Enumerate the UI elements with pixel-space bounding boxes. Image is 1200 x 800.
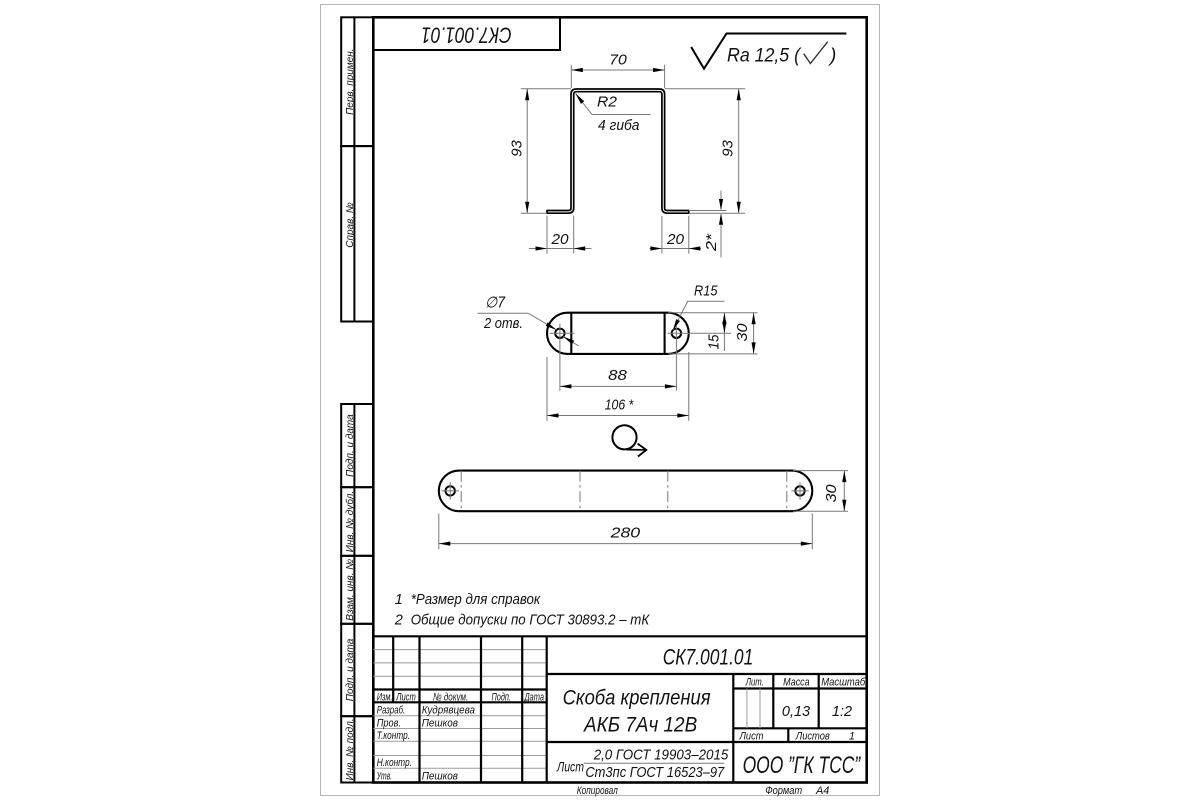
svg-text:Пешков: Пешков — [422, 771, 459, 783]
svg-text:Пешков: Пешков — [422, 717, 459, 729]
svg-text:2: 2 — [394, 613, 403, 629]
svg-text:Подп.: Подп. — [491, 692, 511, 704]
svg-text:1:2: 1:2 — [832, 704, 852, 720]
svg-text:Дата: Дата — [523, 692, 544, 704]
svg-text:Разраб.: Разраб. — [377, 705, 406, 717]
svg-text:93: 93 — [720, 140, 737, 157]
svg-text:1: 1 — [395, 592, 403, 608]
svg-text:2 отв.: 2 отв. — [483, 315, 523, 332]
svg-text:Формат: Формат — [765, 785, 802, 797]
svg-text:Кудрявцева: Кудрявцева — [422, 705, 475, 717]
svg-text:93: 93 — [509, 140, 526, 157]
svg-text:Ra 12,5 (: Ra 12,5 ( — [727, 46, 802, 67]
svg-text:Лит.: Лит. — [745, 677, 764, 689]
svg-text:280: 280 — [609, 525, 640, 542]
svg-text:106 *: 106 * — [605, 397, 634, 414]
svg-text:70: 70 — [609, 51, 627, 68]
svg-text:1: 1 — [849, 731, 855, 743]
svg-text:Утв.: Утв. — [376, 771, 392, 783]
svg-text:Н.контр.: Н.контр. — [377, 757, 412, 769]
svg-text:Лист: Лист — [396, 692, 416, 704]
svg-text:15: 15 — [706, 334, 723, 350]
svg-text:Лист: Лист — [556, 760, 584, 775]
svg-text:Изм.: Изм. — [377, 692, 393, 704]
svg-text:R2: R2 — [597, 94, 618, 111]
svg-text:СК7.001.01: СК7.001.01 — [421, 22, 512, 47]
svg-text:30: 30 — [823, 484, 840, 503]
svg-text:Масштаб: Масштаб — [821, 677, 866, 689]
svg-text:ООО ”ГК ТСС”: ООО ”ГК ТСС” — [743, 752, 861, 779]
svg-text:Лист: Лист — [739, 731, 764, 743]
svg-text:): ) — [828, 46, 836, 67]
svg-text:Скоба крепления: Скоба крепления — [563, 686, 711, 709]
svg-text:20: 20 — [666, 231, 685, 248]
svg-text:Подп. и дата: Подп. и дата — [345, 638, 356, 701]
svg-text:Взам. инв. №: Взам. инв. № — [345, 559, 356, 621]
svg-text:Подп. и дата: Подп. и дата — [345, 414, 356, 477]
svg-text:4 гиба: 4 гиба — [598, 117, 640, 134]
svg-text:Листов: Листов — [795, 731, 830, 743]
svg-text:0,13: 0,13 — [782, 704, 810, 720]
svg-text:*Размер для справок: *Размер для справок — [411, 592, 542, 608]
svg-text:Инв. № дубл.: Инв. № дубл. — [344, 491, 356, 553]
svg-text:СК7.001.01: СК7.001.01 — [663, 645, 754, 670]
svg-text:2,0 ГОСТ 19903–2015: 2,0 ГОСТ 19903–2015 — [593, 747, 729, 763]
svg-text:R15: R15 — [694, 282, 718, 299]
svg-text:∅7: ∅7 — [485, 294, 506, 311]
svg-text:88: 88 — [608, 367, 627, 384]
svg-text:2*: 2* — [703, 233, 720, 253]
svg-text:Копировал: Копировал — [577, 785, 618, 797]
svg-text:Перв. примен.: Перв. примен. — [345, 48, 356, 114]
svg-text:Справ. №: Справ. № — [345, 202, 356, 248]
svg-text:Ст3пс ГОСТ 16523–97: Ст3пс ГОСТ 16523–97 — [585, 765, 725, 781]
svg-text:Пров.: Пров. — [377, 717, 401, 729]
svg-text:А4: А4 — [815, 785, 829, 797]
svg-text:АКБ 7Ач 12В: АКБ 7Ач 12В — [582, 714, 697, 737]
svg-text:№ докум.: № докум. — [433, 692, 468, 704]
svg-text:20: 20 — [550, 231, 569, 248]
svg-text:30: 30 — [734, 323, 751, 342]
svg-text:Инв. № подл.: Инв. № подл. — [345, 718, 356, 780]
svg-text:Общие допуски по ГОСТ 30893.2: Общие допуски по ГОСТ 30893.2 – тК — [411, 613, 651, 629]
svg-text:Масса: Масса — [783, 677, 810, 689]
svg-text:Т.контр.: Т.контр. — [377, 730, 410, 742]
